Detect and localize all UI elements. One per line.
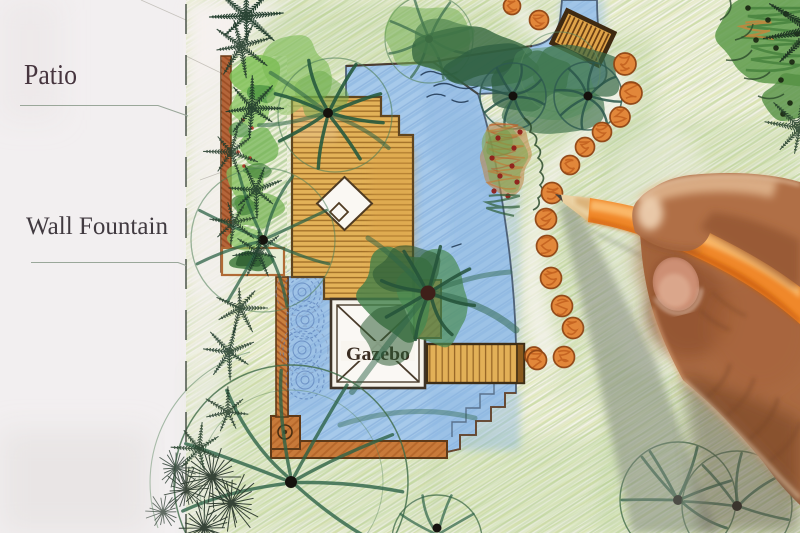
svg-text:Wall Fountain: Wall Fountain: [26, 213, 168, 240]
svg-text:Patio: Patio: [24, 59, 77, 91]
